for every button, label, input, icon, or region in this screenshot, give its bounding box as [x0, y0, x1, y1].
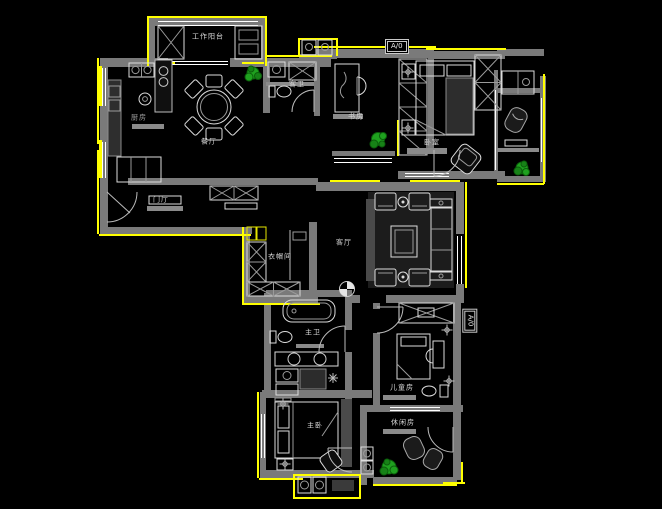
trim — [242, 62, 264, 64]
wall — [332, 151, 395, 156]
door-arc — [107, 192, 137, 222]
window — [170, 64, 228, 65]
bathtub — [283, 300, 335, 322]
elevation-marker-right: A/0 — [462, 309, 477, 333]
trim — [257, 392, 259, 478]
window — [102, 142, 103, 178]
study-chair — [357, 77, 366, 95]
trim — [99, 140, 102, 178]
study-wardrobe — [399, 59, 427, 155]
leisure-shelf — [383, 429, 416, 434]
trim — [293, 474, 361, 476]
window — [461, 236, 462, 284]
kids-vanity — [422, 385, 448, 397]
plant-icon — [370, 133, 387, 149]
window — [457, 236, 458, 284]
wall — [497, 88, 542, 93]
floor-plan-drawing — [0, 0, 662, 509]
double-vanity — [275, 352, 338, 366]
lounge-chair — [401, 434, 427, 462]
wall — [314, 58, 320, 116]
closet-rail — [290, 230, 306, 280]
room-label-kids-room: 儿童房 — [390, 385, 414, 392]
furniture-layer — [108, 26, 539, 493]
floor-drain-icon — [328, 373, 338, 383]
room-label-kitchen: 厨房 — [131, 115, 147, 122]
room-label-master-bath: 主卫 — [305, 330, 321, 337]
master-tv-console — [341, 399, 352, 467]
elevation-marker-label: A/0 — [387, 41, 407, 52]
room-label-closet: 衣帽间 — [268, 254, 292, 261]
trim — [497, 183, 544, 185]
window — [264, 414, 265, 458]
master-bed — [275, 402, 338, 458]
dining-table — [184, 75, 244, 140]
window — [390, 410, 440, 411]
trim — [330, 180, 380, 182]
kids-bed — [397, 334, 430, 379]
wall — [260, 392, 266, 478]
plant-icon — [245, 66, 262, 81]
trim — [410, 180, 460, 182]
trim — [259, 478, 303, 480]
trim — [461, 462, 463, 484]
trim — [97, 58, 99, 144]
bar-stool — [139, 93, 151, 105]
kitchen-shelf — [132, 124, 164, 129]
wall — [316, 182, 464, 191]
toilet — [269, 86, 291, 97]
trim — [265, 16, 267, 66]
window — [390, 407, 440, 408]
wall — [497, 176, 542, 182]
elevation-marker-top: A/0 — [385, 39, 409, 54]
window — [105, 142, 106, 178]
window — [405, 176, 449, 177]
wall — [100, 227, 252, 234]
window — [334, 158, 392, 159]
plant-icon — [514, 161, 530, 176]
bed-double — [416, 61, 474, 135]
kids-wardrobe — [399, 303, 454, 323]
window — [334, 162, 392, 163]
kitchen-counter — [108, 80, 121, 156]
trim — [359, 474, 361, 499]
door-arc — [319, 326, 345, 352]
trim — [242, 227, 244, 305]
window — [102, 68, 103, 106]
flower-symbol — [280, 459, 291, 470]
wall — [497, 49, 544, 56]
lounge-chair — [502, 105, 529, 135]
window — [170, 61, 228, 62]
trim — [543, 74, 545, 184]
kids-desk — [426, 341, 444, 368]
window — [158, 21, 258, 22]
trim — [99, 234, 251, 236]
room-label-leisure-room: 休闲房 — [391, 420, 415, 427]
room-label-master-bedroom: 主卧 — [307, 423, 323, 430]
trim — [426, 48, 506, 50]
plant-icon — [380, 459, 398, 475]
trim — [293, 474, 295, 499]
wall — [262, 390, 372, 398]
trim — [293, 497, 361, 499]
room-label-bedroom: 卧室 — [424, 140, 440, 147]
balcony-cabinet-right — [235, 26, 262, 59]
trim — [298, 38, 300, 56]
bedroom-armchair — [449, 142, 483, 176]
trim — [97, 150, 99, 234]
room-label-work-balcony: 工作阳台 — [192, 34, 224, 41]
master-armchair — [318, 448, 343, 473]
window — [105, 68, 106, 106]
trim — [147, 16, 267, 18]
kids-shelf — [383, 395, 416, 400]
wall — [373, 333, 380, 409]
balcony-box — [332, 480, 354, 491]
room-label-guest-bath: 客卫 — [289, 82, 305, 89]
wall — [264, 293, 271, 395]
room-label-dining: 餐厅 — [201, 139, 217, 146]
trim — [465, 182, 467, 288]
toilet — [270, 331, 292, 343]
window — [261, 414, 262, 458]
flower-symbol — [442, 325, 453, 336]
study-desk — [335, 64, 359, 112]
flower-symbol — [278, 399, 289, 410]
flower-symbol — [403, 123, 414, 134]
room-label-living: 客厅 — [336, 240, 352, 247]
window — [405, 173, 449, 174]
room-label-entry: 门厅 — [153, 197, 169, 204]
trim — [373, 484, 457, 486]
balcony-shelf — [505, 140, 527, 146]
trim — [147, 16, 149, 66]
kitchen-island-sink — [155, 60, 172, 112]
window — [541, 98, 542, 162]
compass-symbol — [340, 282, 355, 297]
ac-unit — [313, 477, 326, 493]
door-opening — [360, 295, 386, 303]
wall — [456, 182, 464, 234]
bath-cabinet — [300, 369, 326, 389]
flower-symbol — [403, 67, 414, 78]
balcony-cabinet-left — [158, 26, 184, 59]
trim — [99, 66, 102, 106]
window — [495, 90, 496, 170]
door-arc — [292, 90, 314, 112]
floor-plan-canvas: 工作阳台 厨房 餐厅 客卫 书房 卧室 门厅 客厅 衣帽间 主卫 儿童房 主卧 … — [0, 0, 662, 509]
elevation-marker-label: A/0 — [464, 311, 475, 331]
wall — [398, 171, 505, 179]
bedroom-bench — [407, 148, 447, 154]
room-label-study: 书房 — [348, 114, 364, 121]
entry-cabinet — [210, 186, 258, 209]
wall — [453, 412, 461, 480]
tv-console — [366, 199, 375, 281]
balcony-divider — [497, 148, 539, 152]
